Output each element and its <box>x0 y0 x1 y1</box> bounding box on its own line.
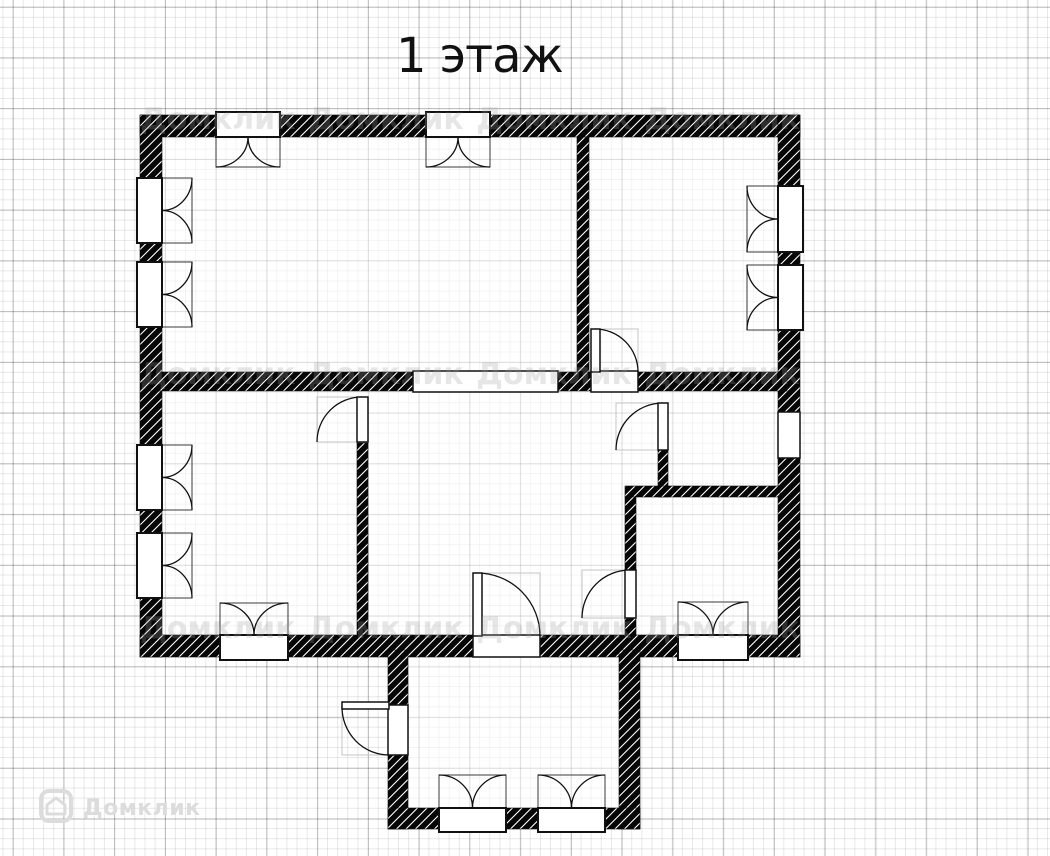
door-leaf <box>357 397 368 442</box>
door-gap <box>388 705 408 755</box>
window-frame <box>137 262 162 327</box>
door-gap <box>473 635 540 657</box>
window-frame <box>678 635 748 660</box>
door-gap <box>591 371 638 392</box>
window-frame <box>216 112 280 137</box>
door-leaf <box>658 403 668 450</box>
wall-segment <box>625 486 780 497</box>
window-frame <box>426 112 490 137</box>
door <box>342 702 408 755</box>
wall-opening <box>413 371 558 392</box>
window-frame <box>538 808 605 832</box>
floor-plan-canvas <box>0 0 1050 856</box>
window-frame <box>220 635 288 660</box>
floorplan-page: { "title": "1 этаж", "watermark": { "lab… <box>0 0 1050 856</box>
window-frame <box>137 533 162 598</box>
wall-segment <box>577 137 589 372</box>
wall-segment <box>625 618 636 635</box>
door-swing-ghost <box>342 707 389 755</box>
window-frame <box>137 178 162 243</box>
window-frame <box>137 445 162 510</box>
floor-title: 1 этаж <box>396 28 563 84</box>
floor-plan-svg <box>0 0 1050 856</box>
room-interior <box>388 650 640 829</box>
door-leaf <box>591 329 600 372</box>
wall-segment <box>625 497 636 570</box>
door-leaf <box>625 570 636 618</box>
door-leaf <box>342 702 389 709</box>
wall-opening <box>778 412 800 458</box>
door-swing-arc <box>342 707 389 755</box>
wall-segment <box>619 650 640 829</box>
window-frame <box>439 808 506 832</box>
window-frame <box>778 186 803 252</box>
window-frame <box>778 265 803 330</box>
door-leaf <box>473 573 482 636</box>
wall-segment <box>357 443 368 635</box>
